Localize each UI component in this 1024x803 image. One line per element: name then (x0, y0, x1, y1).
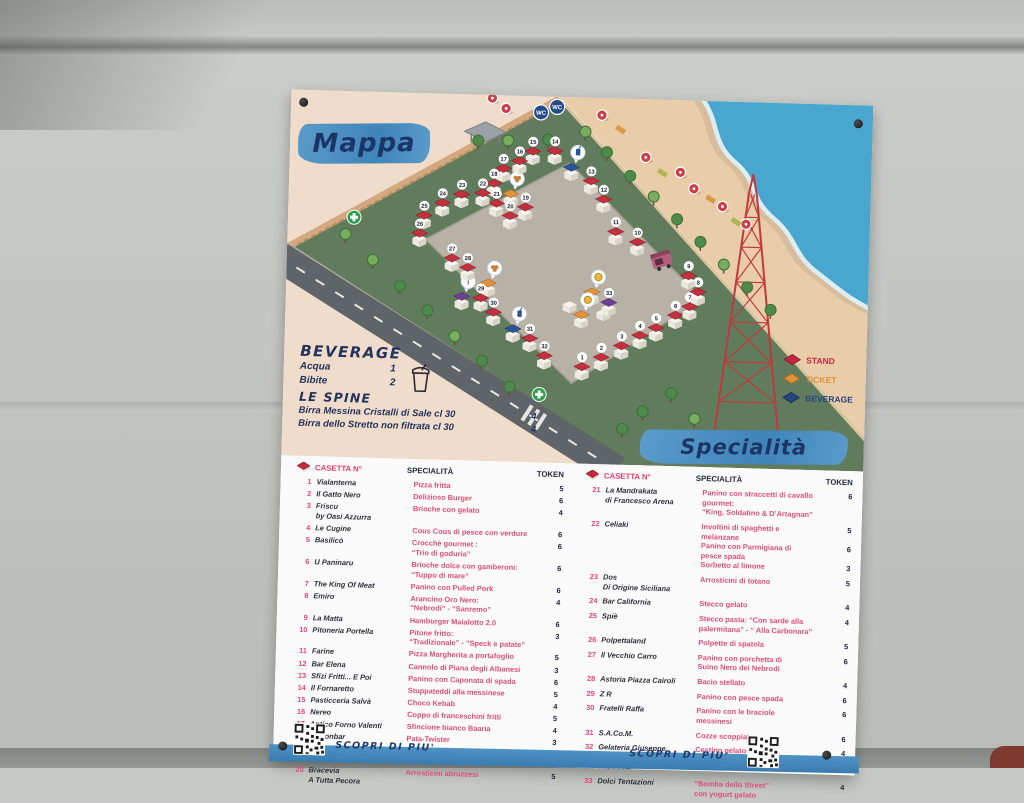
specialita-text: “Bomba dello Street” con yogurt gelato (694, 779, 826, 802)
specialita-item: Stuppateddi alla messinese5 (408, 686, 558, 700)
svg-text:18: 18 (491, 172, 498, 178)
map-section: WCWC !1234567891011121314151617181920212… (281, 89, 873, 471)
casetta-number: 22 (583, 519, 599, 568)
casetta-name: Le Cugine (315, 523, 407, 535)
specialita-item: Cous Cous di pesce con verdure6 (412, 526, 562, 540)
specialita-item: Hamburger Maialotto 2.06 (410, 615, 560, 629)
svg-text:20: 20 (507, 204, 514, 210)
token-value: 5 (833, 526, 851, 535)
specialita-items: Cannolo di Piana degli Albanesi3 (408, 661, 558, 675)
token-header: TOKEN (530, 469, 564, 479)
table-header: CASETTA N° SPECIALITÀ TOKEN (297, 462, 564, 479)
casetta-number: 24 (582, 596, 597, 606)
svg-text:19: 19 (522, 196, 529, 202)
specialita-text: Stecco gelato (699, 599, 831, 612)
specialita-items: Pizza fritta5 (413, 480, 563, 494)
specialita-items: Coppo di franceschini fritti5 (407, 710, 557, 724)
svg-text:13: 13 (588, 169, 595, 175)
specialita-item: Pitone fritto: “Tradizionale” - “Speck e… (409, 628, 559, 651)
token-value: 6 (543, 564, 561, 573)
casetta-name: Il Vecchio Carro (600, 650, 693, 672)
specialita-banner: Specialità (640, 429, 848, 464)
svg-text:WC: WC (552, 105, 563, 111)
token-value: 5 (539, 714, 557, 723)
table-row: 21La Mandrakata di Francesco ArenaPanino… (585, 485, 853, 521)
specialita-title: Specialità (680, 435, 807, 460)
casetta-name: S.A.Co.M. (599, 728, 691, 740)
casetta-name: La Matta (313, 613, 405, 625)
token-value: 4 (829, 681, 847, 690)
svg-text:12: 12 (601, 188, 608, 194)
token-value: 6 (544, 530, 562, 539)
specialita-items: Arancino Oro Nero: “Nebrodi” - “Sanremo”… (410, 594, 560, 617)
drink-cup-icon (407, 363, 434, 399)
specialita-item: Polpette di spatola5 (698, 638, 848, 652)
svg-text:31: 31 (527, 327, 534, 333)
table-row: 22CeliakiInvoltini di spaghetti e melanz… (583, 519, 851, 575)
specialita-item: Coppo di franceschini fritti5 (407, 710, 557, 724)
table-row: 26PolpettalandPolpette di spatola5 (581, 635, 848, 652)
beverage-item-name: Bibite (299, 373, 327, 387)
specialita-item: Sfincione bianco Baaria4 (407, 722, 557, 736)
casetta-number: 23 (583, 572, 599, 592)
svg-text:23: 23 (459, 183, 466, 189)
red-object-edge (990, 746, 1024, 768)
casetta-name: Dolci Tentazioni (597, 776, 690, 798)
specialita-items: Panino con straccetti di cavallo gourmet… (702, 488, 853, 521)
casetta-name: Bar California (602, 597, 694, 609)
casetta-number: 28 (580, 674, 595, 684)
casetta-number: 13 (291, 670, 306, 680)
specialita-items: Pizza Margherita a portafoglio5 (409, 649, 559, 663)
specialita-text: Stecco pasta: “Con sarde alla palermitan… (699, 614, 831, 637)
specialita-item: Panino con porchetta di Suino Nero dei N… (697, 653, 847, 676)
svg-text:2: 2 (600, 346, 603, 352)
beverage-item-name: Acqua (300, 360, 331, 374)
specialita-item: Arrosticini di totano5 (700, 575, 850, 589)
casetta-number: 26 (581, 635, 596, 645)
specialita-items: Brioche con gelato4 (412, 504, 562, 527)
casetta-header: CASETTA N° (297, 462, 407, 475)
svg-text:33: 33 (606, 291, 613, 297)
casetta-name: Z R (600, 689, 692, 701)
specialita-text: Choco Kebab (407, 698, 539, 711)
casetta-name: Nereo (310, 707, 402, 719)
token-value: 4 (539, 726, 557, 735)
table-row: 30Fratelli RaffaPanino con le braciole m… (579, 703, 846, 730)
casetta-name: Bracevia A Tutta Pecora (308, 765, 401, 787)
specialita-items: Panino con le braciole messinesi6 (696, 706, 846, 729)
specialita-item: Arrosticini abruzzesi5 (405, 768, 555, 782)
specialita-list: CASETTA N° SPECIALITÀ TOKEN 1Vialanterna… (274, 455, 863, 729)
specialita-text: Sfincione bianco Baaria (407, 722, 539, 735)
specialita-text: Coppo di franceschini fritti (407, 710, 539, 723)
casetta-number: 9 (293, 612, 308, 622)
specialita-items: Arrosticini di totano5 (700, 575, 850, 598)
casetta-header: CASETTA N° (586, 470, 696, 483)
specialita-text: Delizioso Burger (413, 492, 545, 505)
casetta-name: Polpettaland (601, 635, 693, 647)
first-aid-icon (347, 210, 361, 224)
specialita-text: Stuppateddi alla messinese (408, 686, 540, 699)
specialita-item: Brioche con gelato4 (413, 504, 563, 518)
token-value: 3 (540, 665, 558, 674)
token-value: 3 (538, 738, 556, 747)
svg-text:24: 24 (439, 191, 446, 197)
token-value: 4 (831, 618, 849, 627)
casetta-name: La Mandrakata di Francesco Arena (605, 485, 698, 516)
token-value: 3 (832, 564, 850, 573)
table-row: 27Il Vecchio CarroPanino con porchetta d… (581, 650, 848, 677)
casetta-number: 15 (290, 695, 305, 705)
specialita-items: Stecco pasta: “Con sarde alla palermitan… (699, 614, 849, 637)
table-row: 20Bracevia A Tutta PecoraArrosticini abr… (288, 765, 555, 792)
specialita-item: Brioche dolce con gamberoni: “Tuppo di m… (411, 560, 561, 583)
specialita-item: Arancino Oro Nero: “Nebrodi” - “Sanremo”… (410, 594, 560, 617)
specialita-text: Crocchè gourmet : “Trio di goduria” (412, 538, 544, 561)
specialita-items: Pitone fritto: “Tradizionale” - “Speck e… (409, 628, 559, 651)
token-value: 5 (540, 689, 558, 698)
table-row: 33Dolci Tentazioni“Bomba dello Street” c… (577, 776, 844, 803)
specialita-item: Panino con Caponata di spada6 (408, 674, 558, 688)
casetta-number: 3 (296, 501, 312, 521)
casetta-number: 12 (291, 658, 306, 668)
specialita-items: Cous Cous di pesce con verdure6 (412, 526, 562, 540)
casetta-number: 6 (294, 557, 310, 577)
token-value: 4 (545, 508, 563, 517)
svg-text:26: 26 (417, 222, 424, 228)
svg-text:14: 14 (552, 139, 559, 145)
token-value: 6 (829, 695, 847, 704)
specialita-text: Polpette di spatola (698, 638, 830, 651)
specialita-items: Hamburger Maialotto 2.06 (410, 615, 560, 629)
specialita-item: Pizza fritta5 (413, 480, 563, 494)
casetta-number: 14 (291, 682, 306, 692)
token-value: 5 (537, 772, 555, 781)
specialita-items: Involtini di spaghetti e melanzane5Panin… (700, 522, 851, 574)
qr-code-icon (293, 723, 326, 756)
casetta-name: Il Fornaretto (311, 683, 403, 695)
token-value: 5 (832, 579, 850, 588)
svg-text:17: 17 (500, 157, 507, 163)
token-value: 5 (830, 642, 848, 651)
specialita-items: Panino con porchetta di Suino Nero dei N… (697, 653, 847, 676)
specialita-text: Panino con Pulled Pork (411, 582, 543, 595)
specialita-item: Pizza Margherita a portafoglio5 (409, 649, 559, 663)
svg-text:11: 11 (613, 220, 620, 226)
casetta-number: 27 (581, 650, 597, 670)
beach-umbrella-icon (487, 93, 500, 105)
spine-item-tokens: 4 (531, 424, 537, 437)
specialita-items: Panino con pesce spada6 (697, 692, 847, 706)
specialita-items: Panino con Caponata di spada6 (408, 674, 558, 688)
casetta-name: Emiro (313, 591, 406, 613)
token-value: 5 (545, 484, 563, 493)
specialita-items: “Bomba dello Street” con yogurt gelato4 (694, 779, 844, 802)
specialita-items: Stecco gelato4 (699, 599, 849, 613)
specialita-text: Panino con porchetta di Suino Nero dei N… (697, 653, 829, 676)
casetta-name: Vialanterna (316, 477, 408, 489)
specialita-item: Delizioso Burger6 (413, 492, 563, 506)
specialita-text: Cannolo di Piana degli Albanesi (408, 661, 540, 674)
casetta-name: Basilicò (315, 535, 408, 557)
specialita-text: Hamburger Maialotto 2.0 (410, 615, 542, 628)
svg-text:27: 27 (449, 247, 456, 253)
spine-item-tokens: 4 (531, 410, 537, 423)
beverage-legend-label: BEVERAGE (805, 393, 853, 404)
token-value: 5 (541, 653, 559, 662)
casetta-name: Bar Elena (311, 659, 403, 671)
wc-icon: WC (549, 99, 564, 114)
table-row: 25SpièStecco pasta: “Con sarde alla pale… (582, 611, 849, 638)
casetta-name: Il Gatto Nero (316, 489, 408, 501)
table-row: 23Dos Di Origine SicilianaArrosticini di… (583, 572, 850, 599)
token-value: 6 (834, 492, 852, 501)
specialita-items: Sfincione bianco Baaria4 (407, 722, 557, 736)
list-column-right: CASETTA N° SPECIALITÀ TOKEN 21La Mandrak… (567, 463, 863, 729)
table-row: 24Bar CaliforniaStecco gelato4 (582, 596, 849, 613)
specialita-text: Cous Cous di pesce con verdure (412, 526, 544, 539)
token-value: 6 (830, 656, 848, 665)
casetta-number: 8 (293, 590, 309, 610)
specialita-item: Crocchè gourmet : “Trio di goduria”6 (412, 538, 562, 561)
svg-text:25: 25 (421, 204, 428, 210)
specialita-items: Choco Kebab4 (407, 698, 557, 712)
specialita-item: Choco Kebab4 (407, 698, 557, 712)
specialita-text: Pitone fritto: “Tradizionale” - “Speck e… (409, 628, 541, 651)
casetta-name: Celiaki (603, 519, 696, 570)
beverage-item: Bibite 2 (299, 373, 395, 389)
svg-text:22: 22 (480, 181, 487, 187)
specialita-text: Pizza fritta (413, 480, 545, 493)
casetta-number: 21 (585, 485, 601, 514)
casetta-number: 5 (295, 535, 311, 555)
list-column-left: CASETTA N° SPECIALITÀ TOKEN 1Vialanterna… (274, 455, 574, 721)
casetta-name: Astoria Piazza Cairoli (600, 674, 692, 686)
specialita-header: SPECIALITÀ (696, 473, 819, 485)
token-value: 6 (540, 677, 558, 686)
svg-text:16: 16 (517, 149, 524, 155)
svg-text:15: 15 (530, 140, 537, 146)
map-title-banner: Mappa (298, 123, 430, 164)
stand-cube-icon (586, 470, 599, 480)
map-title: Mappa (312, 128, 415, 159)
specialita-items: Polpette di spatola5 (698, 638, 848, 652)
wc-icon: WC (533, 105, 548, 120)
token-value: 6 (828, 734, 846, 743)
beverage-block: BEVERAGE Acqua 1 Bibite 2 LE SPINE Birra… (298, 342, 568, 438)
specialita-items: Arrosticini abruzzesi5 (405, 768, 555, 791)
casetta-name: Pasticceria Salvà (310, 695, 402, 707)
casetta-number: 1 (296, 477, 311, 487)
specialita-item: Panino con straccetti di cavallo gourmet… (702, 488, 853, 521)
table-row: 31S.A.Co.M.Cozze scoppiate6 (579, 727, 846, 744)
specialita-items: Stuppateddi alla messinese5 (408, 686, 558, 700)
token-header: TOKEN (819, 477, 853, 487)
specialita-text: Panino con Caponata di spada (408, 674, 540, 687)
specialita-item: Cannolo di Piana degli Albanesi3 (408, 661, 558, 675)
casetta-number: 29 (580, 688, 595, 698)
specialita-item: “Bomba dello Street” con yogurt gelato4 (694, 779, 844, 802)
token-value: 3 (541, 631, 559, 640)
casetta-number: 11 (292, 646, 307, 656)
specialita-text: Brioche dolce con gamberoni: “Tuppo di m… (411, 560, 543, 583)
specialita-item: Stecco gelato4 (699, 599, 849, 613)
casetta-name: Fratelli Raffa (599, 704, 692, 726)
stand-legend-label: STAND (806, 355, 835, 366)
specialita-items: Brioche dolce con gamberoni: “Tuppo di m… (411, 560, 561, 583)
token-value: 6 (545, 496, 563, 505)
casetta-name: U Paninaru (314, 557, 407, 579)
svg-text:21: 21 (493, 192, 500, 198)
token-value: 6 (542, 619, 560, 628)
casetta-number: 2 (296, 489, 311, 499)
svg-text:29: 29 (478, 286, 485, 292)
specialita-text: Panino con pesce spada (697, 692, 829, 705)
svg-text:28: 28 (465, 256, 472, 262)
svg-text:30: 30 (490, 301, 497, 307)
specialita-item: Stecco pasta: “Con sarde alla palermitan… (699, 614, 849, 637)
specialita-item: Panino con le braciole messinesi6 (696, 706, 846, 729)
token-value: 4 (826, 783, 844, 792)
specialita-item: Panino con pesce spada6 (697, 692, 847, 706)
specialita-items: Delizioso Burger6 (413, 492, 563, 506)
svg-text:WC: WC (536, 111, 547, 117)
specialita-items: Panino con Pulled Pork6 (411, 582, 561, 596)
token-value: 6 (543, 585, 561, 594)
specialita-items: Crocchè gourmet : “Trio di goduria”6 (412, 538, 562, 561)
casetta-number: 4 (295, 523, 310, 533)
token-value: 4 (539, 701, 557, 710)
svg-text:10: 10 (634, 231, 641, 237)
casetta-name: Spiè (602, 611, 695, 633)
casetta-name: Dos Di Origine Siciliana (603, 572, 696, 594)
qr-code-icon (747, 735, 780, 768)
beverage-item-tokens: 1 (390, 362, 396, 376)
specialita-text: Panino con straccetti di cavallo gourmet… (702, 488, 835, 521)
table-header: CASETTA N° SPECIALITÀ TOKEN (586, 470, 853, 487)
table-row: 29Z RPanino con pesce spada6 (580, 688, 847, 705)
casetta-name: Farine (312, 647, 404, 659)
token-value: 4 (542, 597, 560, 606)
token-value: 6 (828, 710, 846, 719)
ticket-legend-label: TICKET (806, 374, 838, 385)
specialita-text: Arrosticini di totano (700, 575, 832, 588)
specialita-text: Bacio stellato (697, 677, 829, 690)
beverage-item-tokens: 2 (390, 376, 396, 390)
specialita-text: Pizza Margherita a portafoglio (409, 649, 541, 662)
specialita-items: Bacio stellato4 (697, 677, 847, 691)
specialita-text: Arrosticini abruzzesi (405, 768, 537, 781)
casetta-number: 31 (579, 727, 594, 737)
casetta-number: 33 (577, 776, 593, 796)
specialita-text: Panino con le braciole messinesi (696, 706, 828, 729)
specialita-text: Brioche con gelato (413, 504, 545, 517)
specialita-item: Panino con Pulled Pork6 (411, 582, 561, 596)
casetta-name: The King Of Meat (314, 579, 406, 591)
token-value: 4 (831, 603, 849, 612)
casetta-number: 7 (294, 578, 309, 588)
specialita-header: SPECIALITÀ (407, 465, 530, 477)
casetta-number: 25 (582, 611, 598, 631)
casetta-name: Friscu by Oasi Azzurra (316, 502, 409, 524)
table-row: 28Astoria Piazza CairoliBacio stellato4 (580, 674, 847, 691)
casetta-number: 30 (579, 703, 595, 723)
token-value: 6 (544, 542, 562, 551)
casetta-name: Sfizi Fritti... E Poi (311, 671, 403, 683)
stand-cube-icon (297, 462, 310, 472)
casetta-name: Pitoneria Portella (312, 625, 405, 647)
specialita-text: Arancino Oro Nero: “Nebrodi” - “Sanremo” (410, 594, 542, 617)
festival-map-poster: WCWC !1234567891011121314151617181920212… (273, 89, 873, 775)
specialita-item: Bacio stellato4 (697, 677, 847, 691)
token-value: 6 (833, 545, 851, 554)
casetta-number: 10 (292, 624, 308, 644)
casetta-number: 16 (290, 707, 305, 717)
